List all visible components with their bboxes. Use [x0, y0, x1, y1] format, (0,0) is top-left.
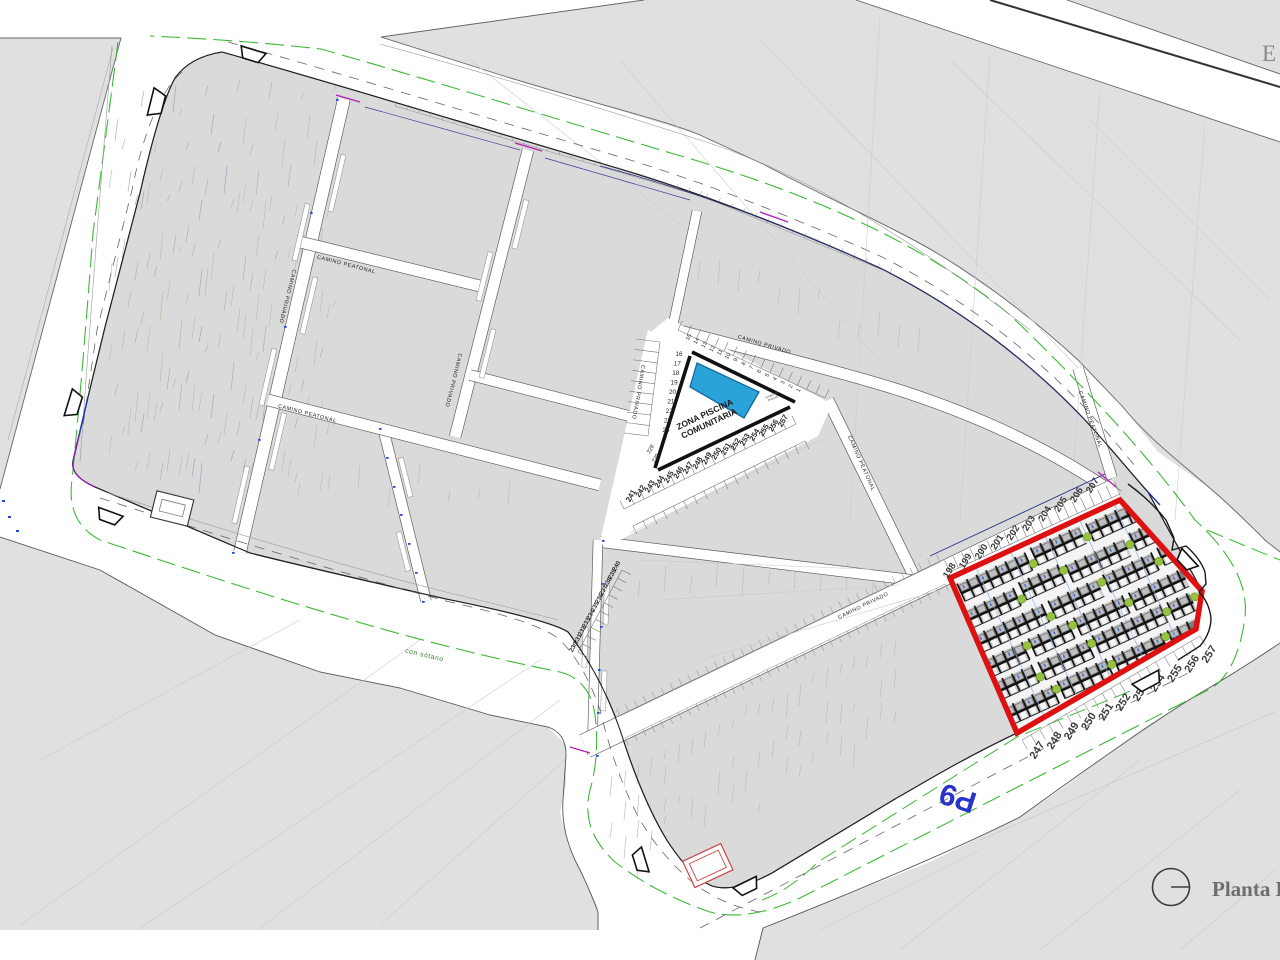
svg-text:23: 23 [664, 418, 672, 425]
svg-text:256: 256 [1182, 653, 1202, 675]
svg-text:20: 20 [669, 389, 677, 396]
svg-text:con sótano: con sótano [404, 648, 444, 664]
svg-text:22: 22 [666, 408, 674, 415]
svg-text:247: 247 [1028, 739, 1048, 761]
svg-text:248: 248 [1045, 730, 1065, 752]
svg-text:257: 257 [1200, 643, 1220, 665]
svg-text:18: 18 [672, 370, 680, 377]
svg-text:24: 24 [662, 427, 670, 434]
svg-text:P9: P9 [935, 776, 980, 819]
svg-text:19: 19 [671, 380, 679, 387]
svg-text:21: 21 [667, 399, 675, 406]
svg-text:249: 249 [1062, 720, 1082, 742]
svg-text:16: 16 [675, 351, 683, 358]
svg-text:255: 255 [1165, 663, 1185, 685]
svg-text:17: 17 [674, 361, 682, 368]
svg-text:250: 250 [1079, 711, 1099, 733]
svg-text:Planta B: Planta B [1212, 877, 1280, 901]
svg-text:E: E [1262, 41, 1276, 66]
